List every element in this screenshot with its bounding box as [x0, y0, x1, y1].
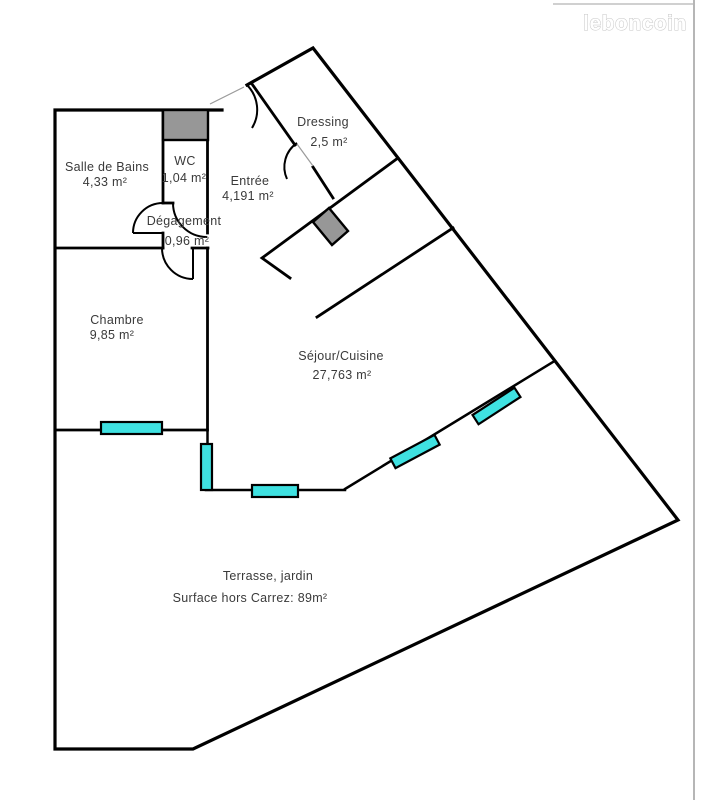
- door-bedroom: [162, 248, 193, 279]
- wall-window-bay: [206, 362, 553, 490]
- leboncoin-logo: leboncoin: [583, 12, 687, 35]
- room-area-dressing: 2,5 m²: [310, 135, 347, 149]
- room-label-sejour-cuisine: Séjour/Cuisine: [298, 349, 384, 363]
- room-label-chambre: Chambre: [90, 313, 144, 327]
- room-label-dressing: Dressing: [297, 115, 349, 129]
- room-labels: Salle de Bains 4,33 m² WC 1,04 m² Entrée…: [65, 115, 384, 605]
- window-bedroom: [101, 422, 162, 434]
- door-dressing-arc: [284, 143, 297, 179]
- room-area-degagement: 0,96 m²: [165, 234, 209, 248]
- floorplan-page: { "watermark": { "label": "leboncoin" },…: [0, 0, 701, 800]
- wall-dressing-door-jamb: [313, 167, 333, 198]
- room-label-wc: WC: [174, 154, 195, 168]
- room-label-salle-de-bains: Salle de Bains: [65, 160, 149, 174]
- room-area-wc: 1,04 m²: [162, 171, 206, 185]
- window-living-lower: [390, 435, 439, 468]
- duct-block-living: [313, 208, 348, 245]
- room-label-entree: Entrée: [231, 174, 270, 188]
- room-label-terrasse: Terrasse, jardin: [223, 569, 313, 583]
- door-entrance: [210, 85, 257, 128]
- door-bedroom-arc: [162, 248, 193, 279]
- window-bay-horizontal: [252, 485, 298, 497]
- room-area-salle-de-bains: 4,33 m²: [83, 175, 127, 189]
- room-label-degagement: Dégagement: [147, 214, 222, 228]
- room-area-sejour-cuisine: 27,763 m²: [313, 368, 372, 382]
- door-dressing: [284, 143, 313, 179]
- window-bay-vertical: [201, 444, 212, 490]
- room-area-entree: 4,191 m²: [222, 189, 274, 203]
- door-entrance-leaf: [210, 87, 244, 104]
- duct-block-wc: [163, 110, 208, 140]
- wall-dressing-left: [252, 84, 295, 145]
- room-area-chambre: 9,85 m²: [90, 328, 134, 342]
- floor-plan: Salle de Bains 4,33 m² WC 1,04 m² Entrée…: [0, 0, 701, 800]
- wall-outer-boundary: [55, 48, 678, 749]
- room-area-terrasse: Surface hors Carrez: 89m²: [173, 591, 328, 605]
